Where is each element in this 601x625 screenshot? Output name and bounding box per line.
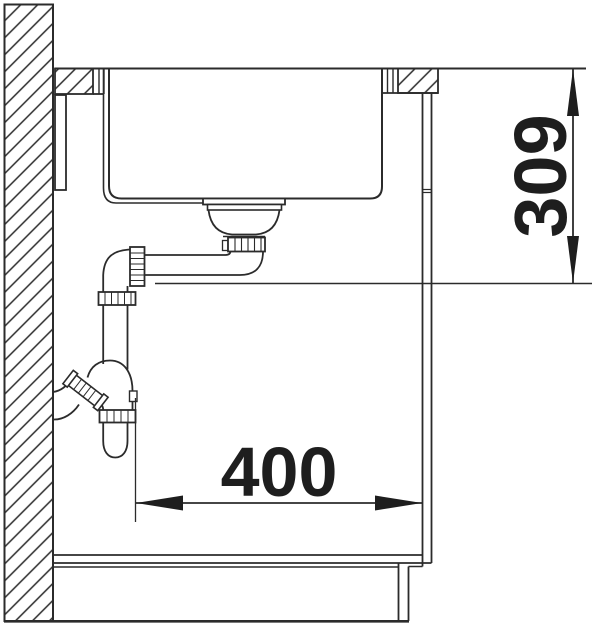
vertical-pipe-nut xyxy=(99,292,136,305)
strainer-flange xyxy=(203,199,285,205)
arrowhead-bottom xyxy=(567,236,579,283)
worktop-left-section xyxy=(55,69,93,95)
wall-outlet-nut xyxy=(63,370,108,410)
dimension-height: 309 xyxy=(155,69,592,284)
trap-nut xyxy=(100,410,136,423)
diagram-svg: 400 309 xyxy=(0,0,601,625)
dimension-width-value: 400 xyxy=(221,433,338,511)
worktop xyxy=(55,69,586,95)
hatched-wall xyxy=(5,5,54,622)
sink-bowl-outer-wall xyxy=(104,69,205,203)
base-cabinet xyxy=(54,93,432,621)
sink-bowl xyxy=(104,69,383,204)
installation-diagram: 400 309 xyxy=(0,0,601,625)
strainer-thread xyxy=(228,238,265,252)
elbow-nut xyxy=(130,247,145,286)
dimension-width: 400 xyxy=(136,398,423,522)
strainer-waste xyxy=(203,199,285,252)
worktop-right-section xyxy=(398,69,438,94)
drain-elbow xyxy=(103,250,130,293)
dimension-height-value: 309 xyxy=(499,114,582,237)
drain-pipe xyxy=(103,250,263,370)
arrowhead-left xyxy=(136,496,183,511)
arrowhead-right xyxy=(375,496,422,511)
strainer-cup xyxy=(209,210,280,235)
cabinet-back-rail xyxy=(55,95,66,190)
siphon-cup xyxy=(103,423,127,458)
plinth xyxy=(54,563,423,621)
arrowhead-top xyxy=(567,69,579,116)
